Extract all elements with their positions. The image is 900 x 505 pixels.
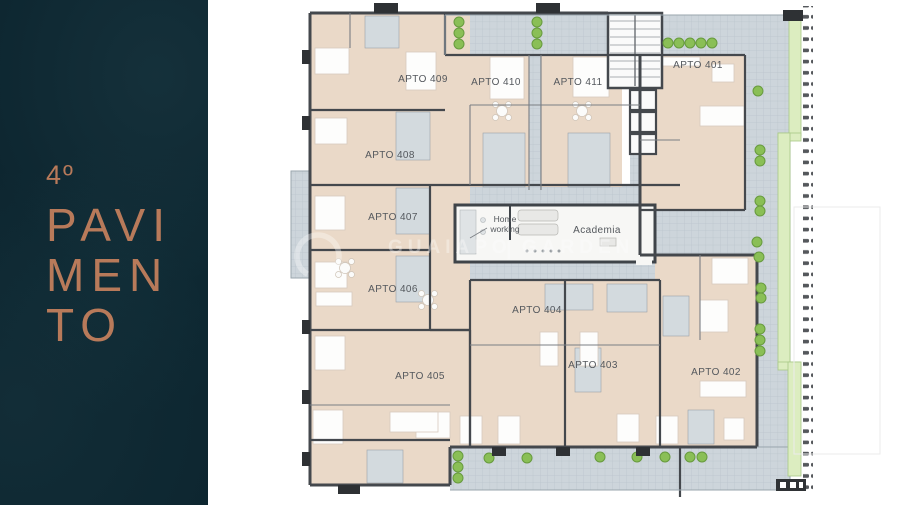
watermark-separator: |	[506, 239, 516, 260]
apartment-label-408: APTO 408	[365, 150, 415, 161]
apartment-label-411: APTO 411	[554, 77, 603, 88]
apartment-label-409: APTO 409	[398, 74, 448, 85]
apartment-label-403: APTO 403	[568, 360, 618, 371]
scale-structure	[776, 479, 806, 491]
apartment-label-405: APTO 405	[395, 371, 445, 382]
apartment-label-404: APTO 404	[512, 305, 562, 316]
apartment-label-402: APTO 402	[691, 367, 741, 378]
watermark-name: GUAIAPO	[388, 237, 512, 258]
home-working-label-line2: working	[489, 224, 520, 234]
floor-plan-area: GUAIAPO | GARDEN APTO 401 APTO 402 APTO …	[0, 0, 900, 505]
elevators	[630, 90, 656, 154]
presentation-slide: 4º PAVI MEN TO	[0, 0, 900, 505]
apartment-label-410: APTO 410	[471, 77, 521, 88]
watermark-suffix: GARDEN	[522, 237, 634, 258]
apartment-label-407: APTO 407	[368, 212, 418, 223]
louver-dashes	[803, 6, 813, 492]
floor-plan: GUAIAPO | GARDEN APTO 401 APTO 402 APTO …	[0, 0, 900, 505]
apartment-label-401: APTO 401	[673, 60, 723, 71]
home-working-label-line1: Home	[494, 214, 517, 224]
stair-core	[608, 13, 662, 88]
academia-label: Academia	[573, 225, 621, 236]
apartment-label-406: APTO 406	[368, 284, 418, 295]
